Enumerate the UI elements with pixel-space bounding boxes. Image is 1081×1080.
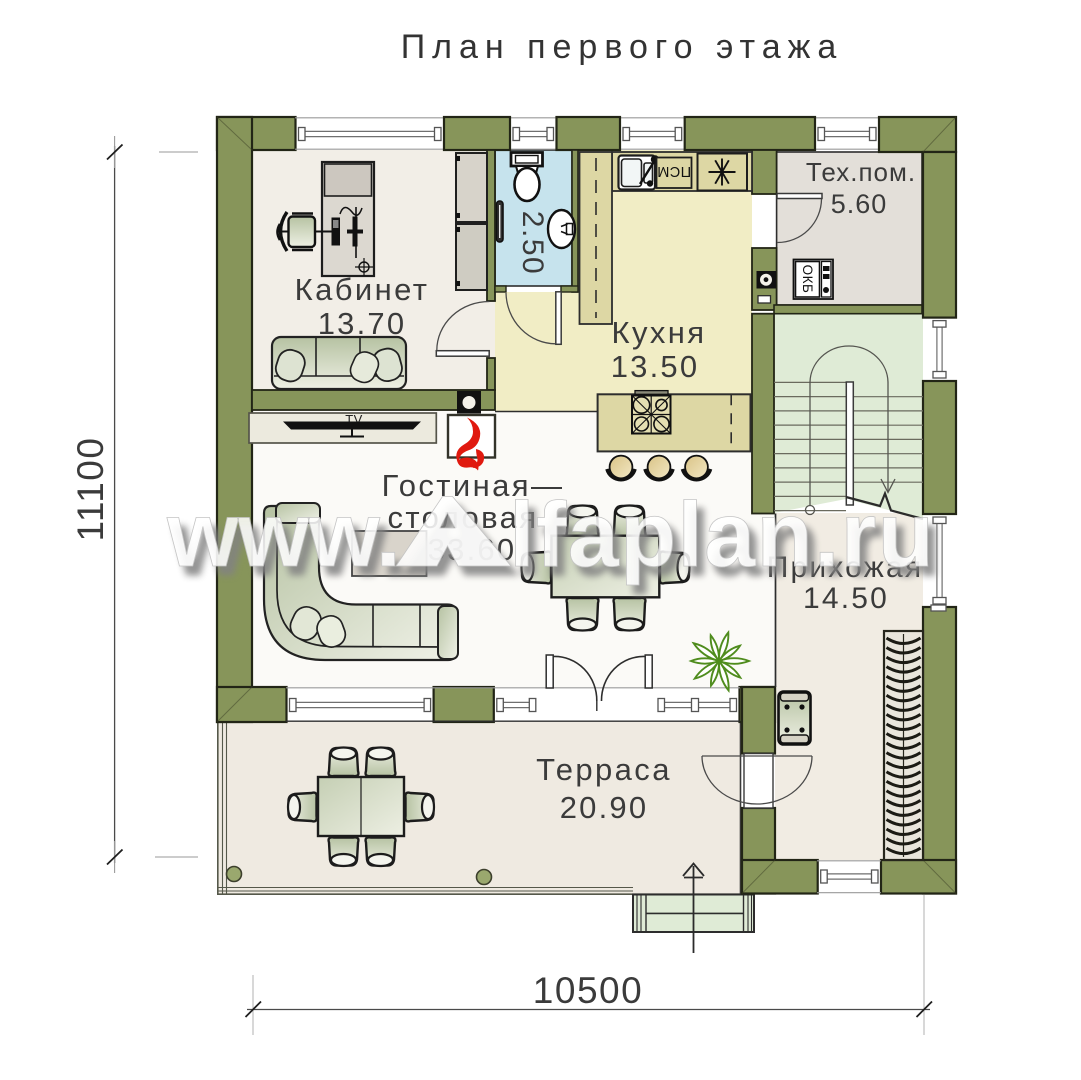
svg-text:11100: 11100 xyxy=(70,437,111,542)
svg-text:Кухня: Кухня xyxy=(612,315,707,350)
svg-text:20.90: 20.90 xyxy=(560,790,649,825)
svg-text:2.50: 2.50 xyxy=(516,211,549,275)
svg-text:13.70: 13.70 xyxy=(318,306,407,341)
svg-text:Терраса: Терраса xyxy=(536,752,672,787)
svg-text:ОКБ: ОКБ xyxy=(800,265,815,294)
svg-text:План первого этажа: План первого этажа xyxy=(401,28,844,66)
svg-text:ПСМ: ПСМ xyxy=(657,163,691,179)
svg-text:Кабинет: Кабинет xyxy=(295,272,430,307)
svg-text:lfaplan.ru: lfaplan.ru xyxy=(509,484,935,586)
svg-text:13.50: 13.50 xyxy=(611,349,700,384)
svg-text:10500: 10500 xyxy=(533,970,643,1011)
svg-text:Тех.пом.: Тех.пом. xyxy=(806,157,916,187)
svg-text:14.50: 14.50 xyxy=(803,582,889,615)
svg-text:5.60: 5.60 xyxy=(831,189,888,219)
svg-text:www.: www. xyxy=(166,484,400,586)
